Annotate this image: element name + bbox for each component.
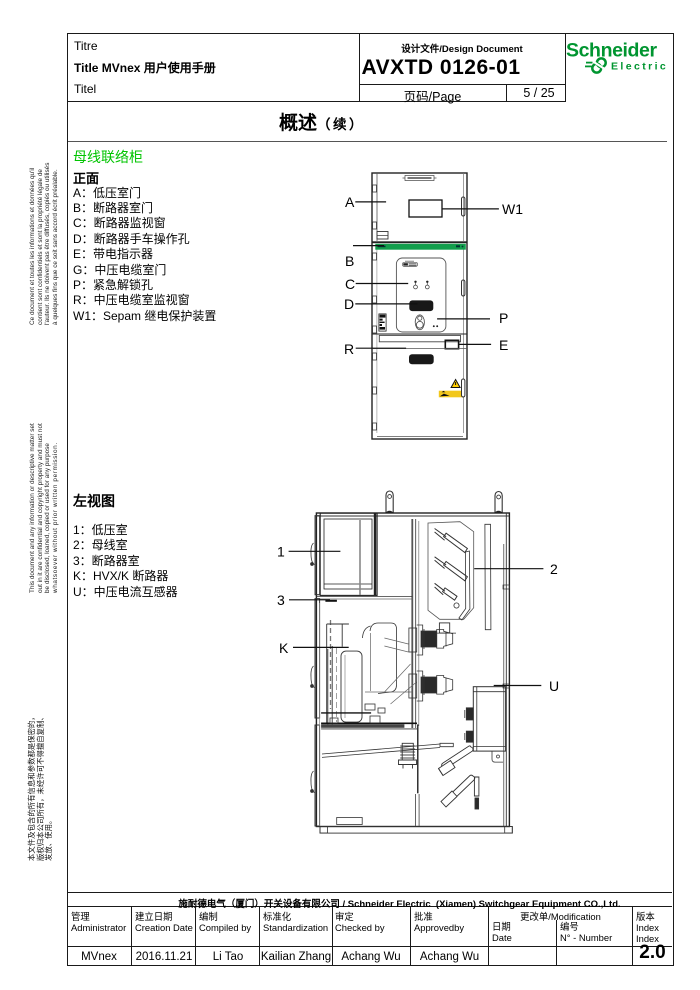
- svg-text:A: A: [345, 194, 355, 210]
- svg-text:3: 3: [277, 592, 285, 608]
- svg-text:Schneider: Schneider: [566, 40, 657, 62]
- svg-text:2: 2: [550, 561, 558, 577]
- svg-text:C: C: [345, 276, 355, 292]
- svg-text:P: P: [499, 310, 508, 326]
- svg-text:Electric: Electric: [611, 61, 668, 73]
- svg-text:W1: W1: [502, 201, 523, 217]
- svg-text:E: E: [499, 337, 508, 353]
- svg-text:R: R: [344, 341, 354, 357]
- svg-text:D: D: [344, 296, 354, 312]
- svg-text:1: 1: [277, 544, 285, 560]
- svg-text:U: U: [549, 678, 559, 694]
- svg-text:K: K: [279, 640, 289, 656]
- svg-text:B: B: [345, 253, 354, 269]
